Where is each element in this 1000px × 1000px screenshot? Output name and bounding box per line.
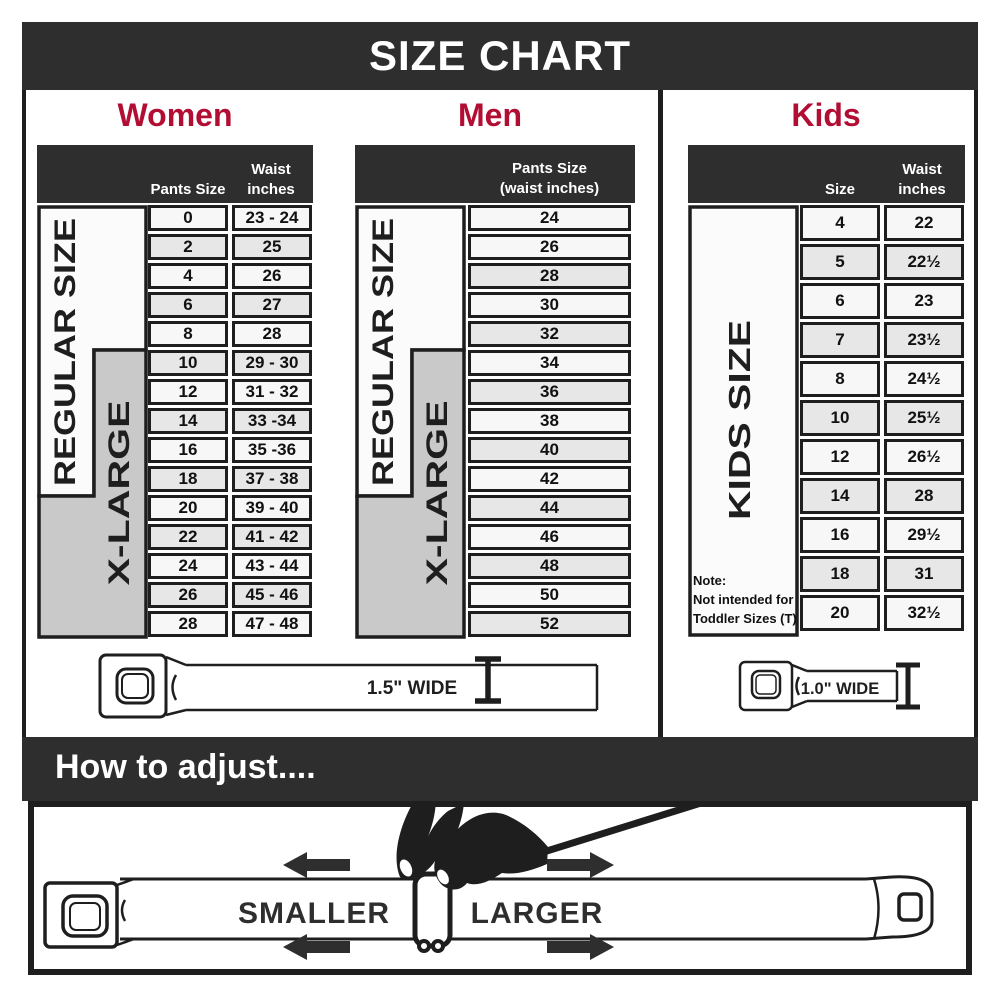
waist-inches-cell: 31 - 32 [232,379,312,405]
page-title-banner: SIZE CHART [22,22,978,90]
pants-size-cell: 22 [148,524,228,550]
kids-belt-illustration: 1.0" WIDE [733,657,933,715]
waist-inches-cell: 22 [884,205,964,241]
waist-inches-cell: 39 - 40 [232,495,312,521]
pants-size-cell: 38 [468,408,631,434]
men-table-body: 242628303234363840424446485052 [468,205,631,637]
pants-size-cell: 16 [148,437,228,463]
pants-size-cell: 12 [148,379,228,405]
pulled-strap [534,807,701,855]
pants-size-cell: 28 [148,611,228,637]
kids-size-cell: 18 [800,556,880,592]
waist-inches-cell: 23 - 24 [232,205,312,231]
men-heading: Men [400,97,580,134]
pants-size-cell: 42 [468,466,631,492]
waist-inches-cell: 27 [232,292,312,318]
belt-latch-notch [122,900,125,921]
regular-size-label: REGULAR SIZE [49,218,82,486]
pants-size-cell: 26 [468,234,631,260]
pants-size-cell: 8 [148,321,228,347]
pants-size-cell: 10 [148,350,228,376]
waist-inches-cell: 25 [232,234,312,260]
buckle-icon [100,655,166,717]
larger-label: LARGER [471,897,604,930]
pants-size-cell: 2 [148,234,228,260]
belt-tip-slot [899,894,921,920]
pants-size-cell: 26 [148,582,228,608]
smaller-label: SMALLER [238,897,390,930]
pants-size-cell: 44 [468,495,631,521]
kids-size-cell: 12 [800,439,880,475]
adjust-illustration-panel: SMALLER LARGER [28,801,972,975]
waist-inches-cell: 24½ [884,361,964,397]
pants-size-cell: 46 [468,524,631,550]
kids-size-cell: 6 [800,283,880,319]
belt-latch-notch [797,677,800,695]
kids-table-body: 422522½623723½824½1025½1226½14281629½183… [800,205,964,631]
pants-size-cell: 20 [148,495,228,521]
pants-size-cell: 4 [148,263,228,289]
kids-size-cell: 16 [800,517,880,553]
x-large-label: X-LARGE [103,401,136,586]
women-heading: Women [85,97,265,134]
waist-inches-cell: 26 [232,263,312,289]
kids-table-header: Size Waist inches [688,145,965,203]
kids-col-size-label: Size [800,180,880,200]
adjust-heading: How to adjust.... [55,748,316,787]
waist-inches-cell: 28 [884,478,964,514]
women-col-pants-label: Pants Size [144,180,232,200]
belt-latch-notch [173,675,177,700]
men-size-bands: REGULAR SIZE X-LARGE [355,205,466,639]
pants-size-cell: 0 [148,205,228,231]
adjust-section-banner: How to adjust.... [22,737,978,801]
waist-inches-cell: 32½ [884,595,964,631]
women-col-waist-label: Waist inches [229,160,313,200]
section-divider [658,90,663,737]
waist-inches-cell: 45 - 46 [232,582,312,608]
pants-size-cell: 34 [468,350,631,376]
waist-inches-cell: 26½ [884,439,964,475]
pants-size-cell: 52 [468,611,631,637]
waist-inches-cell: 41 - 42 [232,524,312,550]
waist-inches-cell: 37 - 38 [232,466,312,492]
x-large-label: X-LARGE [421,401,454,586]
waist-inches-cell: 28 [232,321,312,347]
men-size-table: Pants Size (waist inches) REGULAR SIZE X… [355,145,635,639]
kids-size-cell: 14 [800,478,880,514]
waist-inches-cell: 35 -36 [232,437,312,463]
arrow-left-icon [283,852,350,878]
kids-size-table: Size Waist inches KIDS SIZE Note: Not in… [688,145,965,637]
kids-heading: Kids [736,97,916,134]
pants-size-cell: 30 [468,292,631,318]
pants-size-cell: 14 [148,408,228,434]
pants-size-cell: 40 [468,437,631,463]
pants-size-cell: 6 [148,292,228,318]
waist-inches-cell: 29 - 30 [232,350,312,376]
kids-size-cell: 10 [800,400,880,436]
kids-size-cell: 5 [800,244,880,280]
kids-size-cell: 20 [800,595,880,631]
size-chart-page: SIZE CHART Women Men Kids Pants Size Wai… [0,0,1000,1000]
women-table-header: Pants Size Waist inches [37,145,313,203]
kids-col-waist-label: Waist inches [882,160,962,200]
kids-note: Note: Not intended for Toddler Sizes (T) [693,571,799,628]
waist-inches-cell: 22½ [884,244,964,280]
waist-inches-cell: 23 [884,283,964,319]
men-table-header: Pants Size (waist inches) [355,145,635,203]
women-table-body: 023 - 242254266278281029 - 301231 - 3214… [148,205,312,637]
regular-size-label: REGULAR SIZE [367,218,400,486]
waist-inches-cell: 33 -34 [232,408,312,434]
adjust-illustration: SMALLER LARGER [34,807,966,969]
pants-size-cell: 50 [468,582,631,608]
kids-size-cell: 4 [800,205,880,241]
waist-inches-cell: 31 [884,556,964,592]
pants-size-cell: 18 [148,466,228,492]
frame-right-edge [974,90,978,737]
pants-size-cell: 32 [468,321,631,347]
kids-size-cell: 7 [800,322,880,358]
adult-belt-illustration: 1.5" WIDE [90,648,610,724]
pants-size-cell: 36 [468,379,631,405]
page-title: SIZE CHART [369,32,631,80]
kids-size-label: KIDS SIZE [722,320,757,520]
women-size-table: Pants Size Waist inches REGULAR SIZE X-L… [37,145,313,639]
waist-inches-cell: 43 - 44 [232,553,312,579]
frame-left-edge [22,90,26,737]
pants-size-cell: 24 [468,205,631,231]
arrow-right-icon [547,852,614,878]
men-col-label: Pants Size (waist inches) [468,159,631,199]
women-size-bands: REGULAR SIZE X-LARGE [37,205,148,639]
waist-inches-cell: 47 - 48 [232,611,312,637]
pants-size-cell: 28 [468,263,631,289]
pants-size-cell: 48 [468,553,631,579]
waist-inches-cell: 23½ [884,322,964,358]
kids-size-cell: 8 [800,361,880,397]
waist-inches-cell: 25½ [884,400,964,436]
buckle-icon [740,662,792,710]
pants-size-cell: 24 [148,553,228,579]
width-measure-icon [896,665,920,707]
adult-belt-width-label: 1.5" WIDE [367,678,457,699]
kids-belt-width-label: 1.0" WIDE [801,680,879,698]
waist-inches-cell: 29½ [884,517,964,553]
